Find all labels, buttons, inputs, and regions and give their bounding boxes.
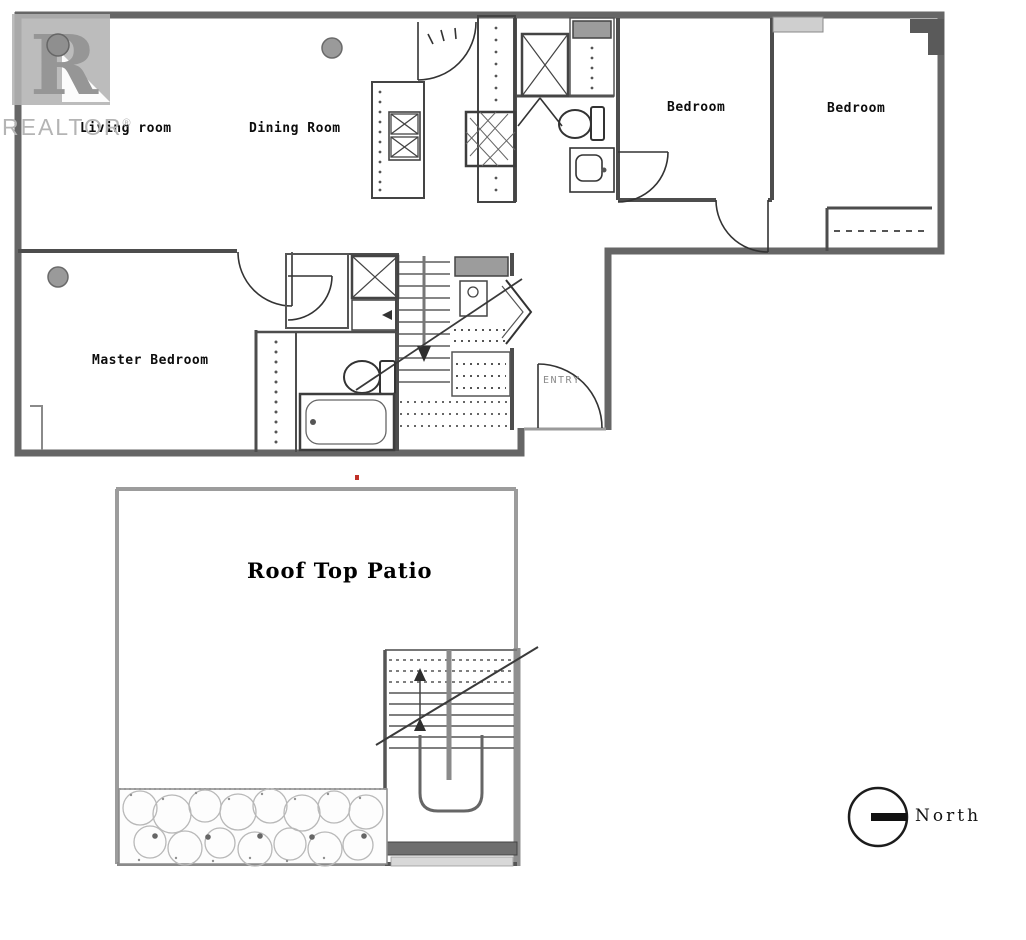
washer-dryer-closet-icon [452,257,510,396]
interior-walls [18,18,932,452]
ceiling-light-icon [47,34,69,56]
kitchen-counter [466,16,515,202]
dining-room-label: Dining Room [249,121,341,136]
hall-toilet-icon [559,107,604,140]
roof-top-patio-label: Roof Top Patio [247,558,433,583]
planter-garden-icon [119,789,387,866]
kitchen-island-icon [372,82,424,198]
closet-rod-icon [275,341,278,444]
bulkhead [773,17,823,32]
master-bedroom-label: Master Bedroom [92,353,209,368]
entry-door-icon [538,364,602,428]
north-compass-icon [849,788,907,846]
bedroom-2-label: Bedroom [827,101,885,116]
shower-icon [522,34,568,96]
realtor-logo: R [12,14,110,114]
floor-plan-page: R Living room Dining Room Bedroom Bedroo… [0,0,1026,940]
realtor-watermark-text: REALTOR® [2,114,131,141]
laundry-block [352,256,398,330]
realtor-brand-text: REALTOR [2,114,123,140]
north-label: North [915,806,981,826]
corner-fixture [910,19,944,55]
bathtub-icon [300,394,394,450]
master-toilet-icon [344,361,395,394]
registered-trademark-symbol: ® [123,117,131,129]
hall-vanity-sink-icon [570,148,614,192]
red-artifact [355,475,359,480]
closet-by-stairs [286,254,348,328]
kitchen-sink-icon [466,112,515,166]
floor-plan-drawing: R [0,0,1026,940]
door-swings [238,22,768,428]
realtor-logo-letter: R [30,18,99,114]
hall-closet [570,18,614,96]
entry-label: ENTRY [543,375,581,386]
stove-burners-icon [389,112,420,160]
bedroom-1-label: Bedroom [667,100,725,115]
